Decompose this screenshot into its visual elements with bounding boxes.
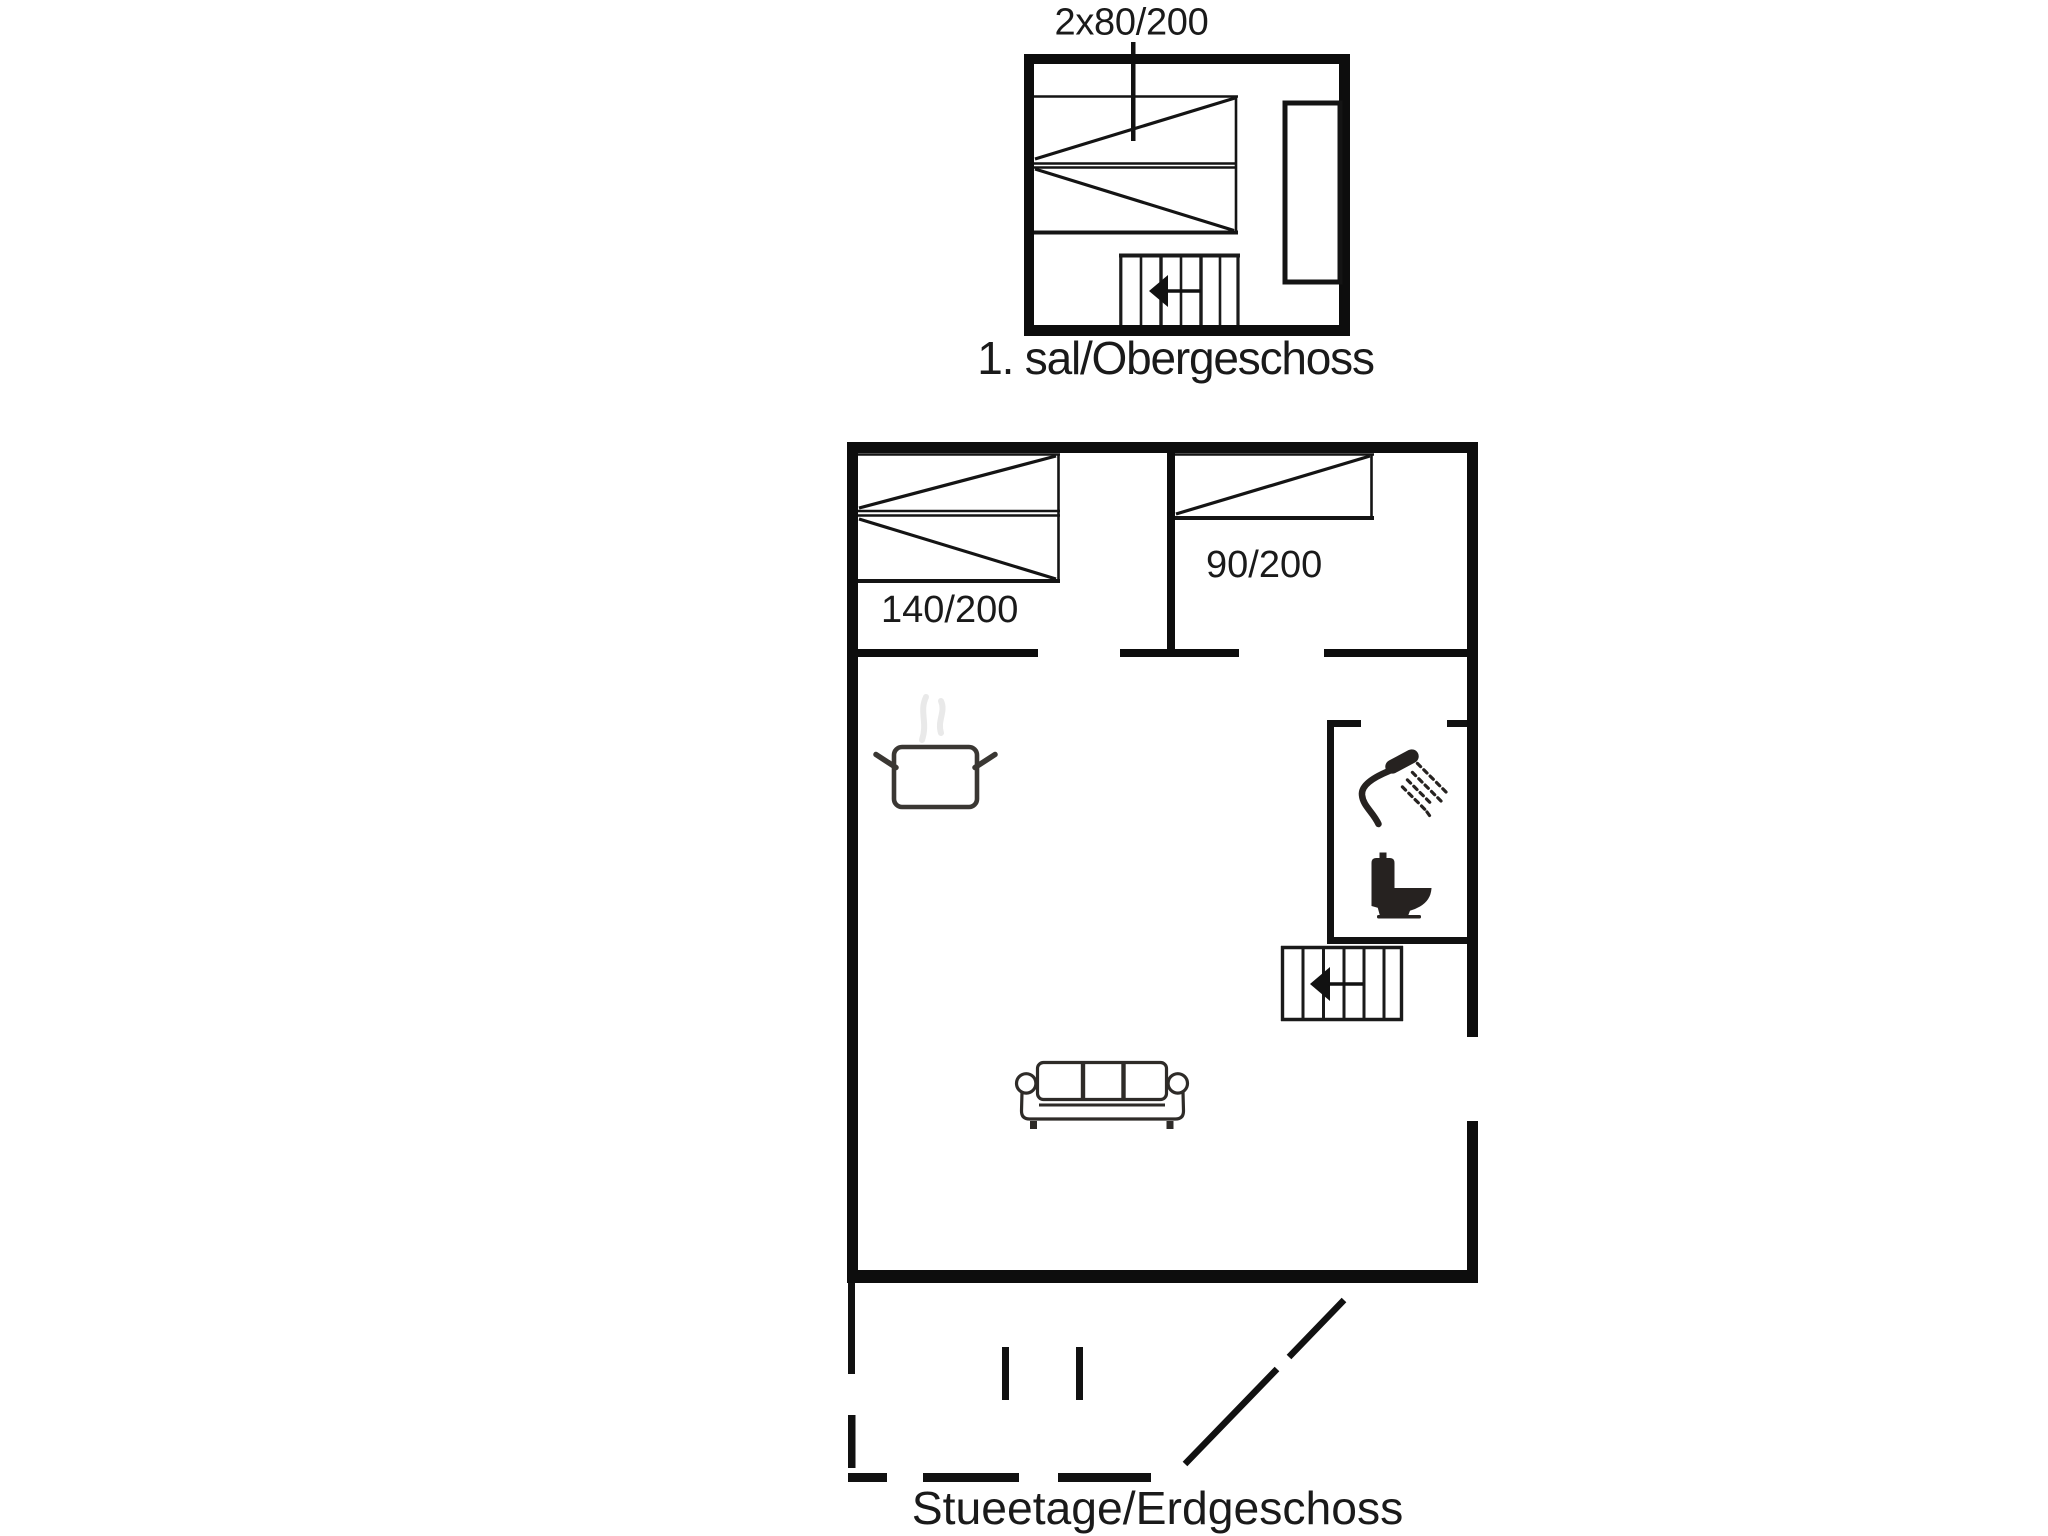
svg-text:Stueetage/Erdgeschoss: Stueetage/Erdgeschoss	[912, 1482, 1404, 1534]
svg-text:2x80/200: 2x80/200	[1055, 2, 1209, 44]
svg-text:90/200: 90/200	[1206, 544, 1322, 586]
svg-text:140/200: 140/200	[881, 589, 1018, 631]
svg-text:1. sal/Obergeschoss: 1. sal/Obergeschoss	[977, 332, 1374, 384]
